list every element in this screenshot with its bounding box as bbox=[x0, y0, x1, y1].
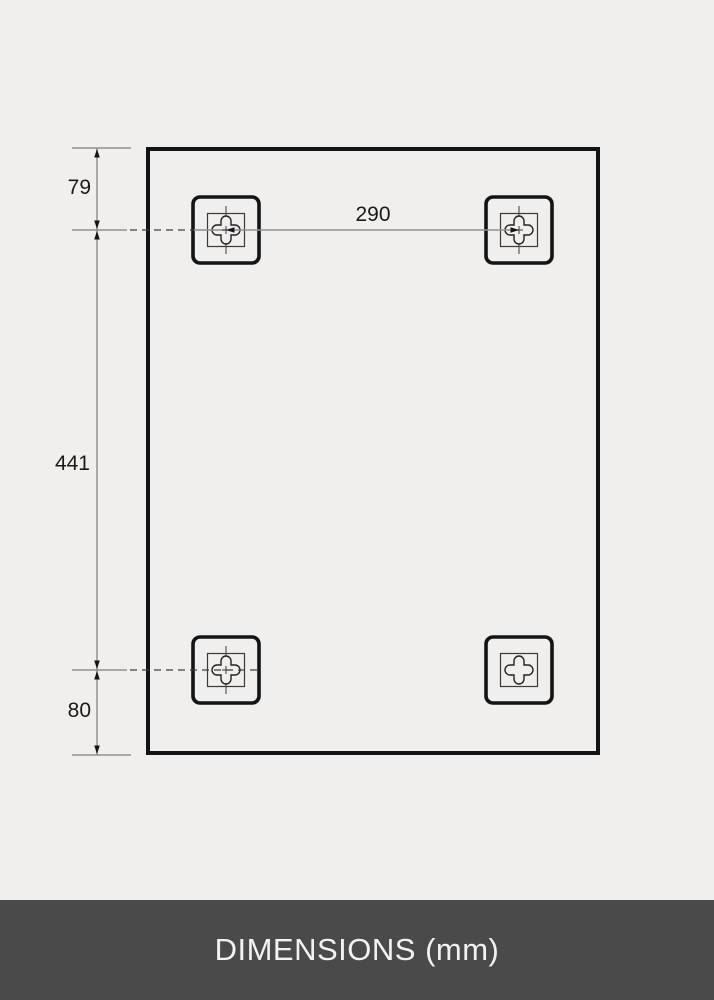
page: 79 441 80 290 DIMENSIONS (mm) bbox=[0, 0, 714, 1000]
bracket-crosshairs bbox=[222, 206, 523, 694]
dimension-label-horizontal-span: 290 bbox=[355, 203, 390, 226]
dimension-label-top-offset: 79 bbox=[68, 176, 91, 199]
dimension-diagram: 79 441 80 290 bbox=[0, 0, 714, 900]
footer-bar: DIMENSIONS (mm) bbox=[0, 900, 714, 1000]
footer-label: DIMENSIONS (mm) bbox=[215, 932, 500, 968]
dimension-label-bottom-offset: 80 bbox=[68, 699, 91, 722]
dimension-arrowheads bbox=[94, 149, 519, 754]
dimension-label-vertical-span: 441 bbox=[55, 452, 90, 475]
mounting-bracket-bottom-right bbox=[486, 637, 552, 703]
